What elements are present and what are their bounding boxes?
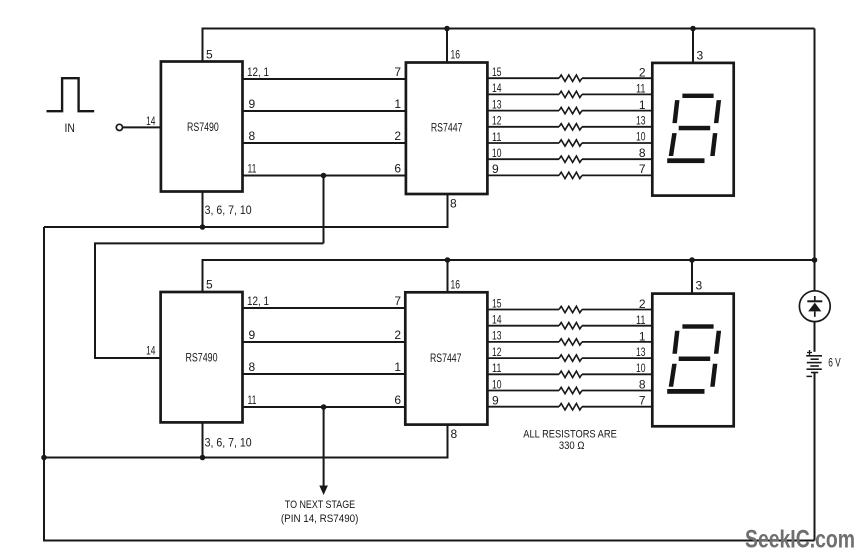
svg-text:7: 7 — [394, 294, 401, 308]
svg-text:8: 8 — [249, 360, 256, 374]
svg-text:16: 16 — [451, 48, 461, 62]
svg-text:10: 10 — [636, 130, 646, 144]
svg-text:7: 7 — [394, 65, 401, 79]
svg-text:6 V: 6 V — [828, 356, 841, 370]
svg-text:1: 1 — [394, 360, 401, 374]
svg-text:14: 14 — [146, 344, 156, 358]
svg-text:9: 9 — [249, 328, 256, 342]
svg-text:8: 8 — [639, 146, 646, 160]
svg-text:12: 12 — [492, 345, 502, 359]
svg-text:(PIN 14, RS7490): (PIN 14, RS7490) — [281, 513, 359, 525]
svg-text:2: 2 — [394, 328, 401, 342]
svg-text:3: 3 — [696, 279, 703, 293]
svg-text:IN: IN — [65, 121, 75, 135]
svg-text:SeekIC.com: SeekIC.com — [745, 525, 855, 553]
svg-text:13: 13 — [492, 329, 502, 343]
svg-text:2: 2 — [394, 129, 401, 143]
svg-text:9: 9 — [492, 394, 499, 408]
svg-text:TO NEXT STAGE: TO NEXT STAGE — [285, 499, 356, 511]
svg-text:7: 7 — [639, 162, 646, 176]
svg-text:RS7490: RS7490 — [187, 120, 219, 134]
svg-text:10: 10 — [492, 377, 502, 391]
svg-text:8: 8 — [451, 427, 458, 441]
svg-text:12: 12 — [492, 114, 502, 128]
svg-text:13: 13 — [636, 114, 646, 128]
svg-text:11: 11 — [636, 82, 646, 96]
svg-text:ALL RESISTORS ARE: ALL RESISTORS ARE — [523, 429, 617, 441]
svg-text:7: 7 — [639, 394, 646, 408]
svg-text:RS7490: RS7490 — [186, 351, 218, 365]
svg-text:15: 15 — [492, 65, 502, 79]
svg-text:14: 14 — [146, 114, 156, 128]
svg-text:330 Ω: 330 Ω — [559, 440, 585, 452]
svg-text:1: 1 — [639, 329, 646, 343]
svg-text:5: 5 — [206, 48, 213, 62]
svg-text:13: 13 — [636, 345, 646, 359]
svg-text:8: 8 — [249, 129, 256, 143]
svg-text:15: 15 — [492, 296, 502, 310]
svg-text:8: 8 — [639, 377, 646, 391]
svg-text:6: 6 — [394, 393, 401, 407]
svg-text:RS7447: RS7447 — [430, 351, 462, 365]
svg-text:10: 10 — [636, 361, 646, 375]
svg-text:13: 13 — [492, 97, 502, 111]
svg-text:9: 9 — [249, 97, 256, 111]
svg-text:11: 11 — [636, 313, 646, 327]
svg-text:3: 3 — [697, 49, 704, 63]
svg-text:3, 6, 7, 10: 3, 6, 7, 10 — [205, 436, 252, 450]
svg-text:8: 8 — [450, 197, 457, 211]
svg-text:10: 10 — [492, 146, 502, 160]
svg-text:11: 11 — [248, 162, 257, 176]
svg-text:2: 2 — [639, 66, 646, 80]
svg-text:12, 1: 12, 1 — [247, 294, 269, 308]
svg-text:5: 5 — [206, 278, 213, 292]
svg-text:6: 6 — [394, 162, 401, 176]
svg-text:11: 11 — [248, 393, 257, 407]
svg-text:3, 6, 7, 10: 3, 6, 7, 10 — [205, 203, 252, 217]
svg-text:9: 9 — [492, 162, 499, 176]
svg-text:RS7447: RS7447 — [431, 121, 463, 135]
svg-text:2: 2 — [639, 297, 646, 311]
svg-text:14: 14 — [492, 313, 502, 327]
svg-text:11: 11 — [492, 361, 502, 375]
svg-text:1: 1 — [394, 97, 401, 111]
svg-text:11: 11 — [492, 130, 502, 144]
svg-text:12, 1: 12, 1 — [247, 65, 269, 79]
svg-text:16: 16 — [451, 278, 461, 292]
svg-text:14: 14 — [492, 81, 502, 95]
svg-text:1: 1 — [639, 98, 646, 112]
